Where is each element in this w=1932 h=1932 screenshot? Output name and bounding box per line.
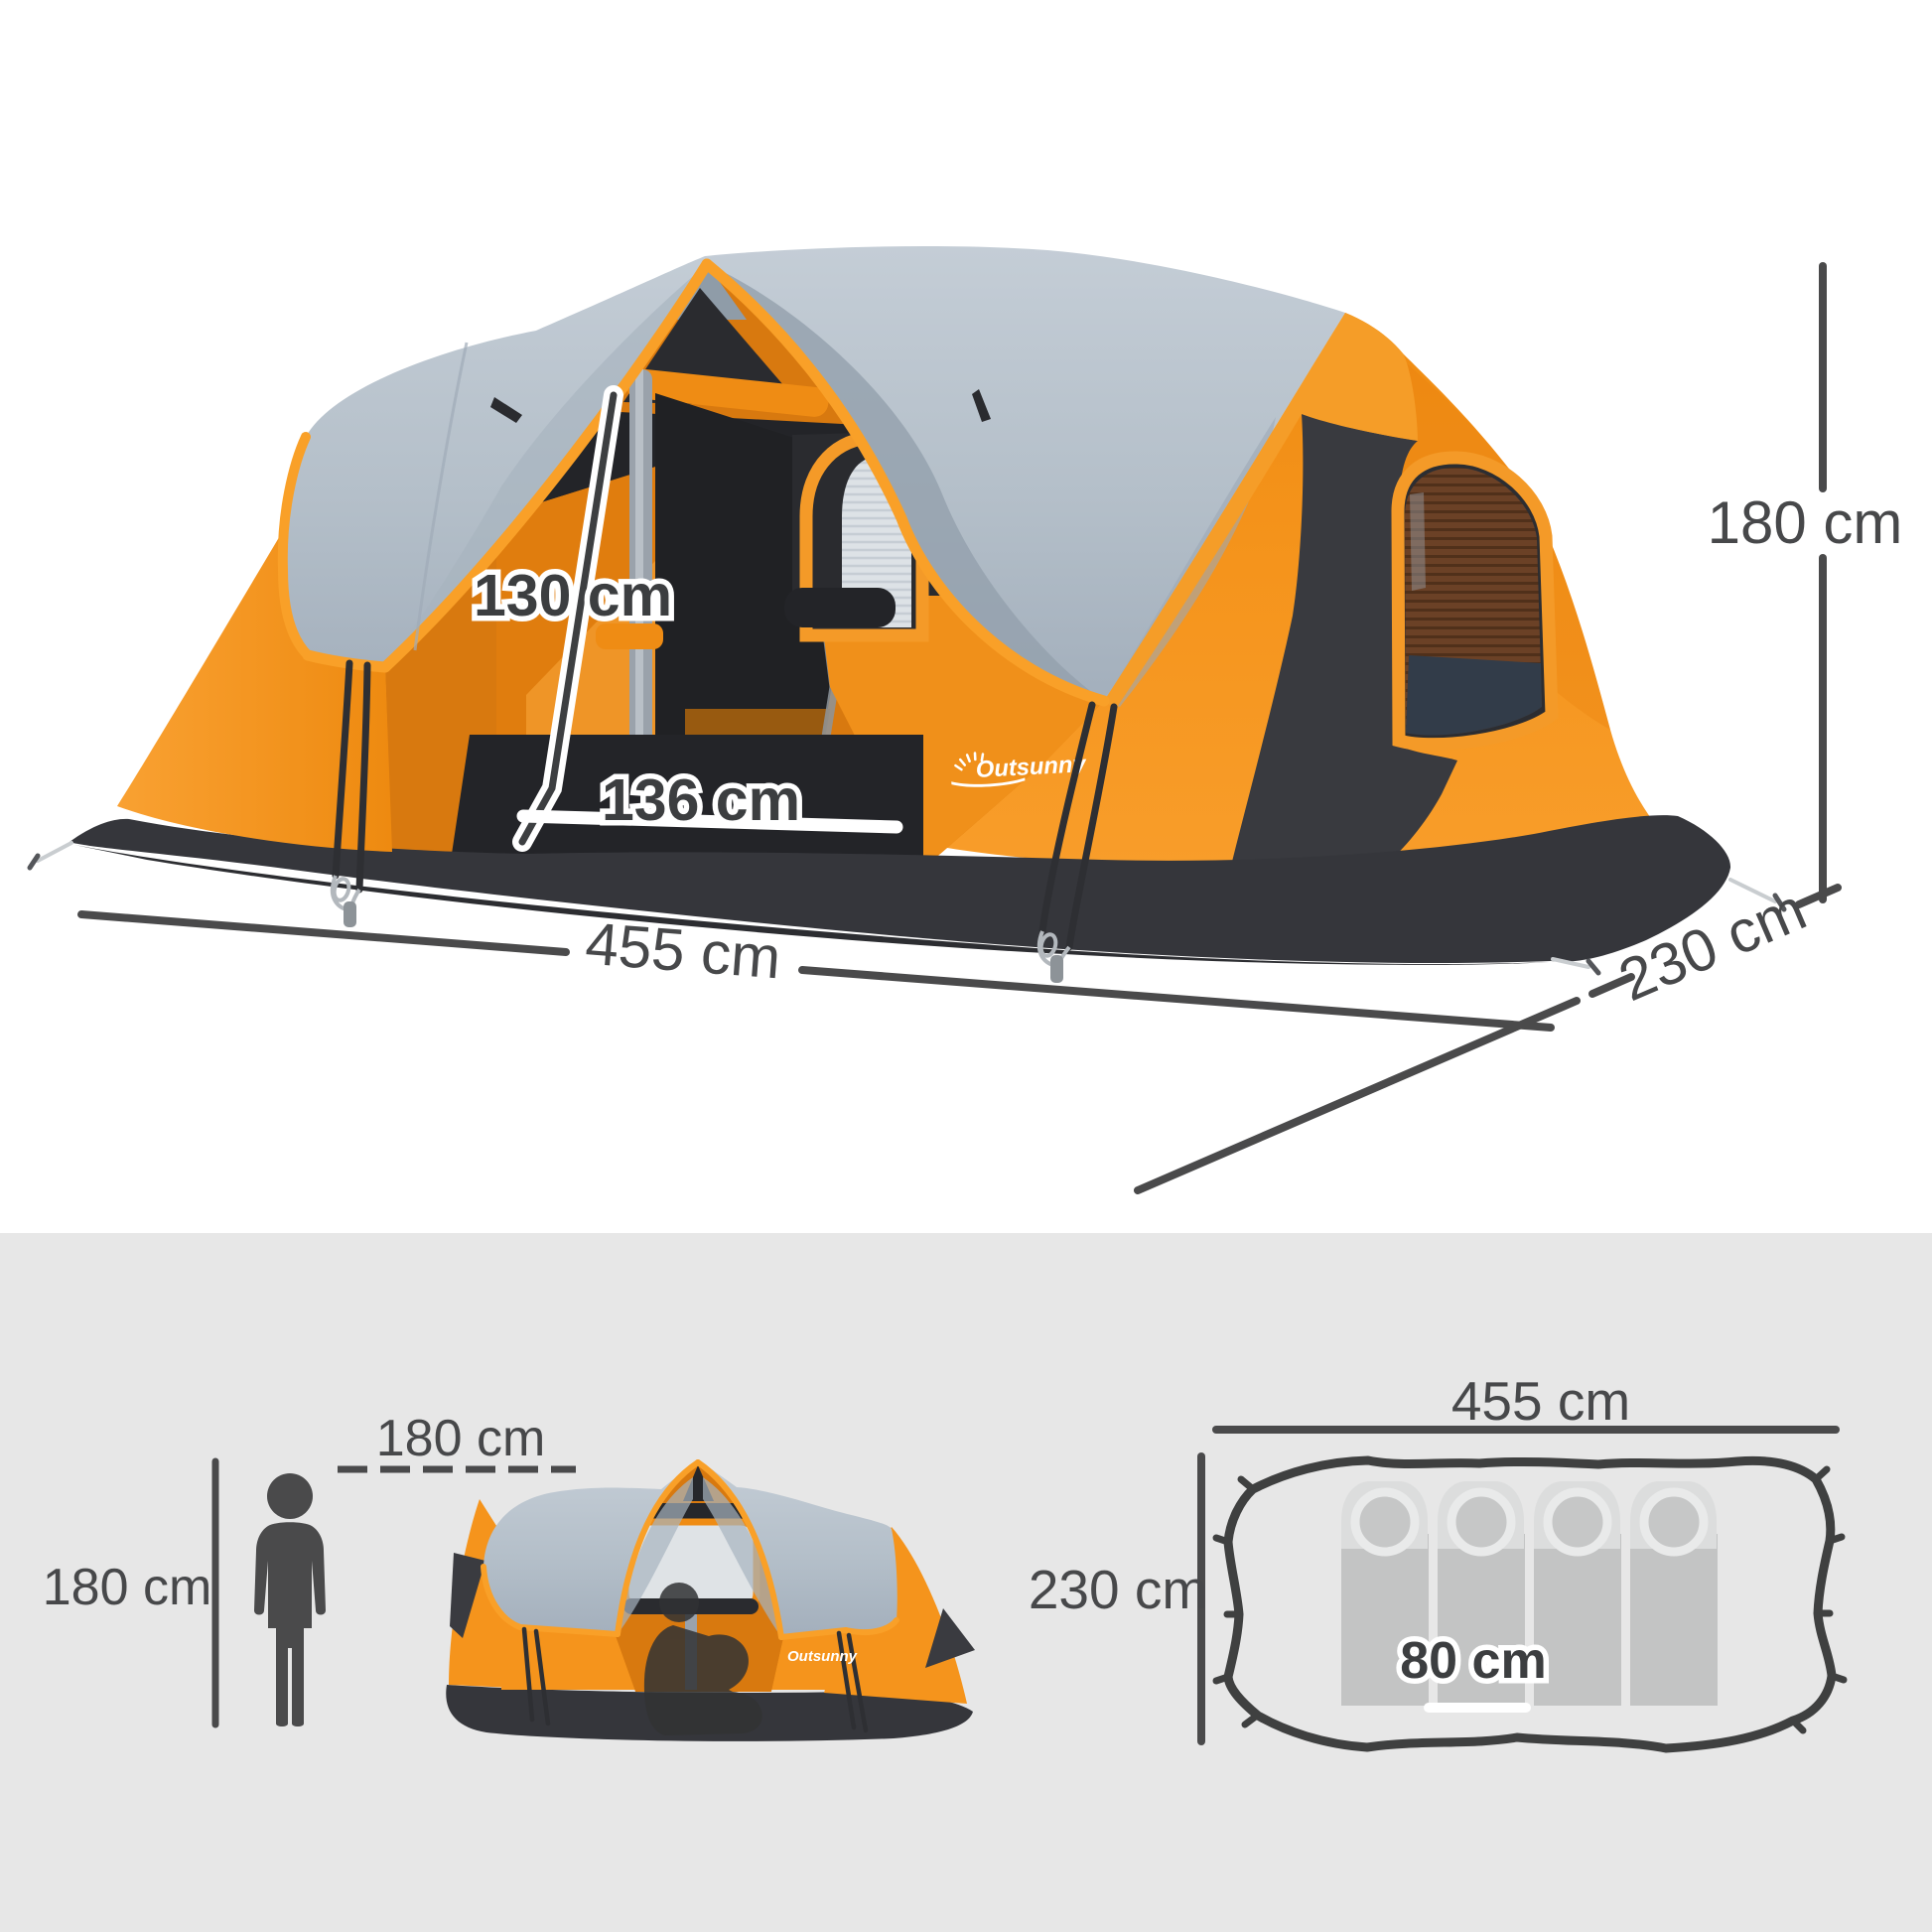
svg-text:Outsunny: Outsunny <box>787 1648 858 1665</box>
svg-text:230 cm: 230 cm <box>1029 1559 1207 1620</box>
svg-text:180 cm: 180 cm <box>1708 489 1903 556</box>
svg-text:136 cm: 136 cm <box>602 767 800 833</box>
svg-text:455 cm: 455 cm <box>1451 1370 1630 1432</box>
svg-text:80 cm: 80 cm <box>1400 1632 1546 1690</box>
svg-text:130 cm: 130 cm <box>474 563 672 628</box>
svg-text:180 cm: 180 cm <box>43 1559 212 1616</box>
svg-text:180 cm: 180 cm <box>376 1410 546 1467</box>
